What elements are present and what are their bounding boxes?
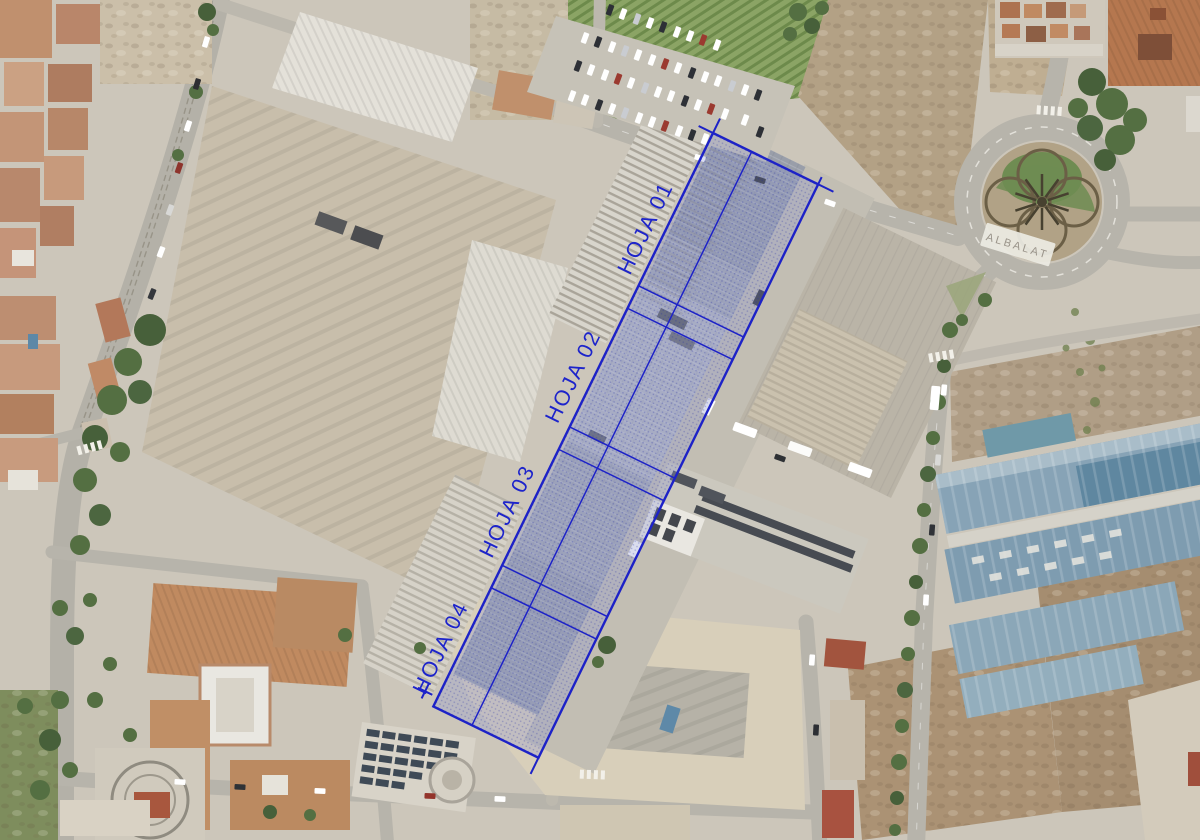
swimming-pool xyxy=(28,334,38,349)
aerial-map-viewport: ALBALAT xyxy=(0,0,1200,840)
aerial-basemap: ALBALAT xyxy=(0,0,1200,840)
